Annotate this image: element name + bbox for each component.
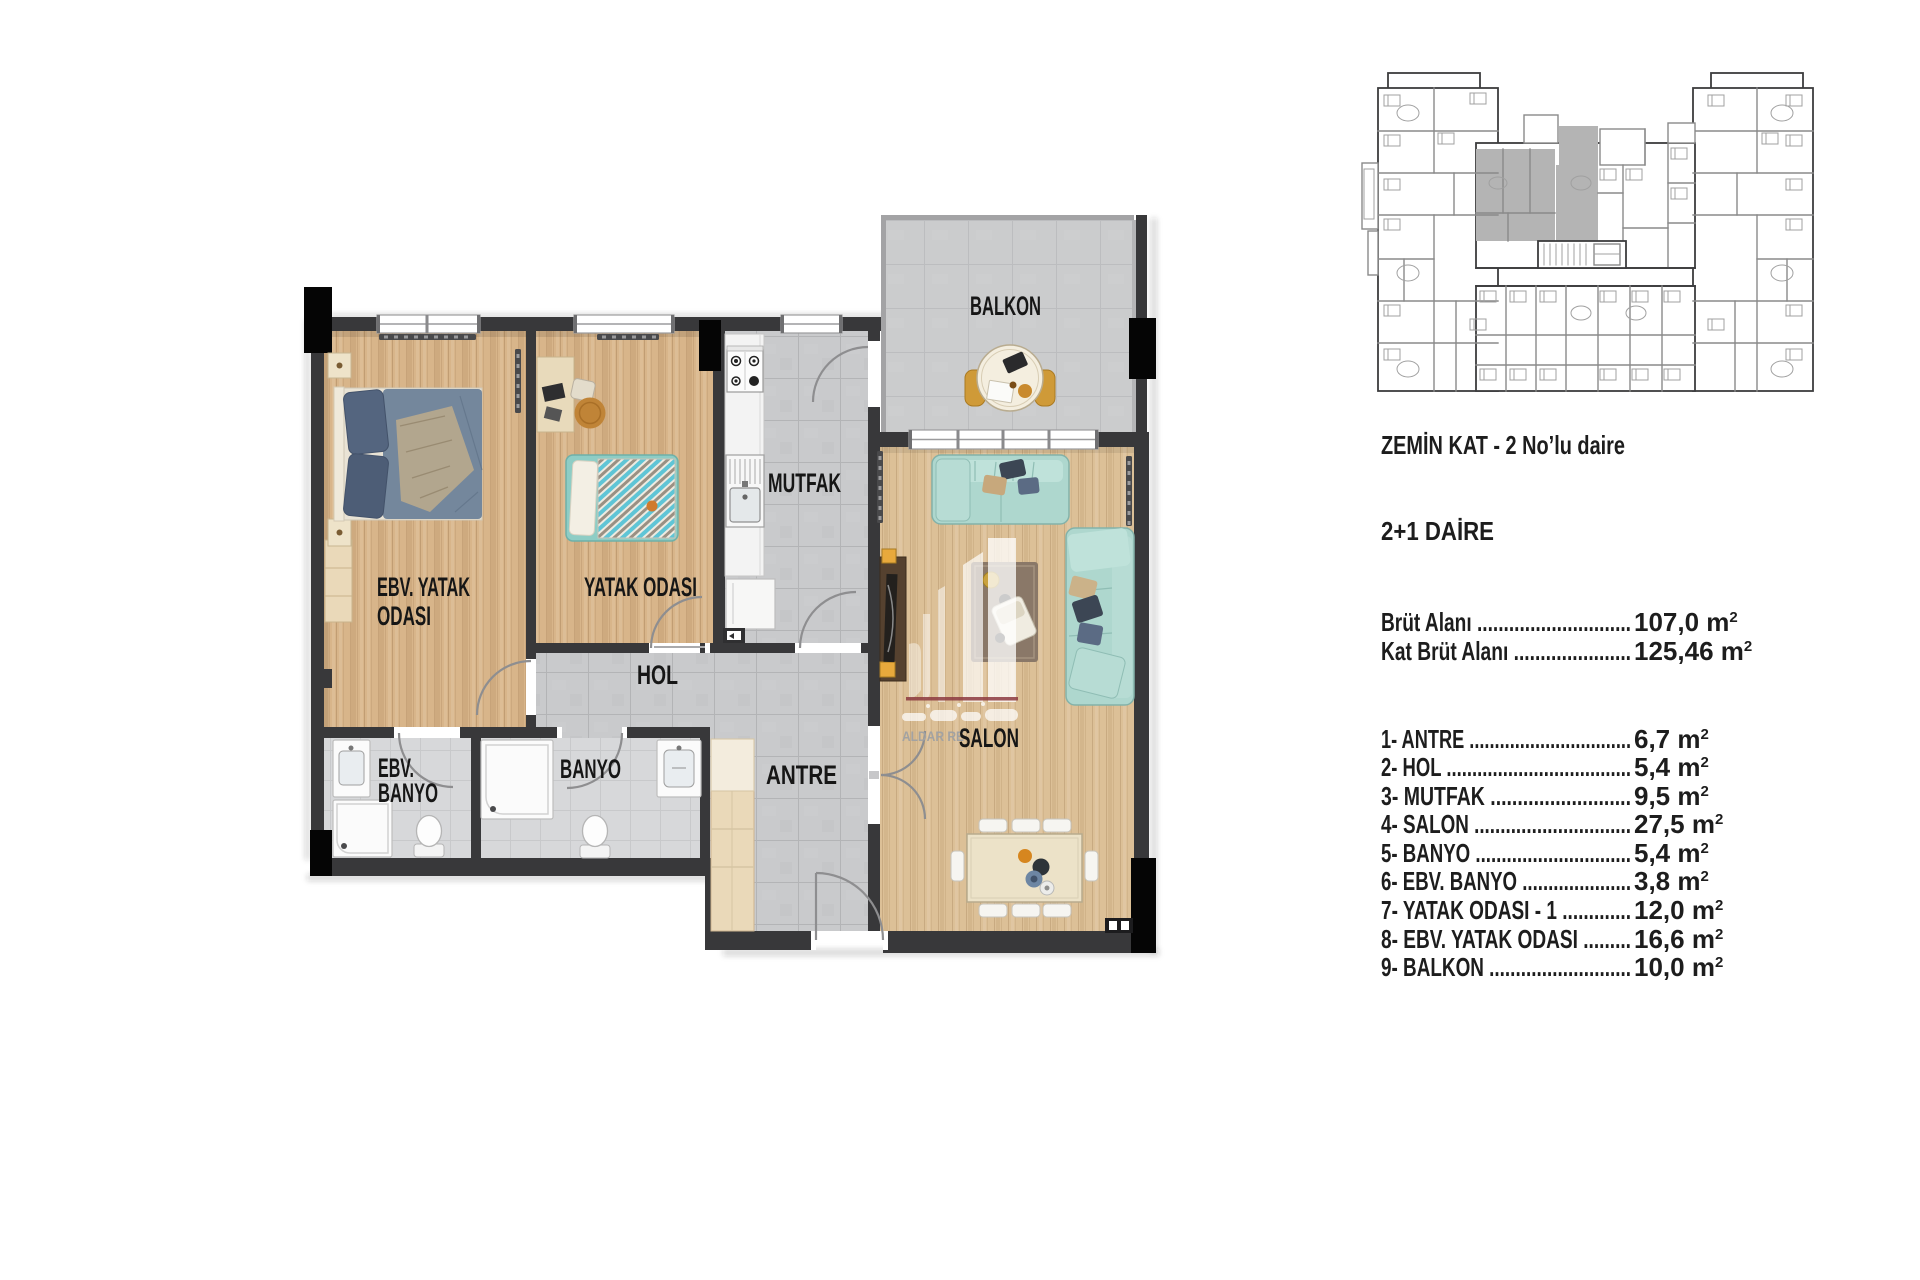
svg-text:5,4 m2: 5,4 m2 (1634, 752, 1709, 782)
svg-text:EBV. YATAK: EBV. YATAK (377, 572, 470, 602)
svg-text:BANYO: BANYO (560, 754, 621, 784)
svg-text:SALON: SALON (959, 723, 1019, 753)
svg-text:6,7 m2: 6,7 m2 (1634, 724, 1709, 754)
svg-text:5,4 m2: 5,4 m2 (1634, 838, 1709, 868)
svg-text:6- EBV. BANYO ................: 6- EBV. BANYO ..................... (1381, 866, 1631, 896)
svg-text:4- SALON .....................: 4- SALON .............................. (1381, 809, 1631, 839)
svg-text:Brüt Alanı ...................: Brüt Alanı ............................. (1381, 607, 1631, 637)
svg-text:27,5 m2: 27,5 m2 (1634, 809, 1723, 839)
svg-text:3- MUTFAK ....................: 3- MUTFAK .......................... (1381, 781, 1631, 811)
svg-text:Kat Brüt Alanı ...............: Kat Brüt Alanı ...................... (1381, 636, 1631, 666)
svg-text:HOL: HOL (637, 660, 678, 690)
svg-text:12,0 m2: 12,0 m2 (1634, 895, 1723, 925)
svg-text:125,46 m2: 125,46 m2 (1634, 636, 1752, 666)
svg-text:9,5 m2: 9,5 m2 (1634, 781, 1709, 811)
svg-text:ALDAR RE: ALDAR RE (902, 728, 964, 744)
svg-text:2+1 DAİRE: 2+1 DAİRE (1381, 516, 1494, 546)
svg-text:MUTFAK: MUTFAK (768, 468, 841, 498)
svg-text:BANYO: BANYO (378, 778, 438, 808)
svg-text:107,0 m2: 107,0 m2 (1634, 607, 1738, 637)
svg-text:ANTRE: ANTRE (766, 760, 837, 790)
svg-text:5- BANYO .....................: 5- BANYO .............................. (1381, 838, 1631, 868)
svg-text:8- EBV. YATAK ODASI .........: 8- EBV. YATAK ODASI ......... (1381, 924, 1631, 954)
svg-text:ZEMİN KAT - 2 No’lu daire: ZEMİN KAT - 2 No’lu daire (1381, 430, 1625, 460)
svg-text:3,8 m2: 3,8 m2 (1634, 866, 1709, 896)
svg-text:YATAK ODASI: YATAK ODASI (584, 572, 697, 602)
svg-text:1- ANTRE .....................: 1- ANTRE ...............................… (1381, 724, 1631, 754)
svg-text:2- HOL .......................: 2- HOL .................................… (1381, 752, 1631, 782)
svg-text:ODASI: ODASI (377, 601, 431, 631)
svg-text:16,6 m2: 16,6 m2 (1634, 924, 1723, 954)
svg-text:BALKON: BALKON (970, 291, 1041, 321)
svg-text:9- BALKON ....................: 9- BALKON ........................... (1381, 952, 1631, 982)
svg-text:10,0 m2: 10,0 m2 (1634, 952, 1723, 982)
svg-text:7- YATAK ODASI - 1 ...........: 7- YATAK ODASI - 1 ............. (1381, 895, 1631, 925)
